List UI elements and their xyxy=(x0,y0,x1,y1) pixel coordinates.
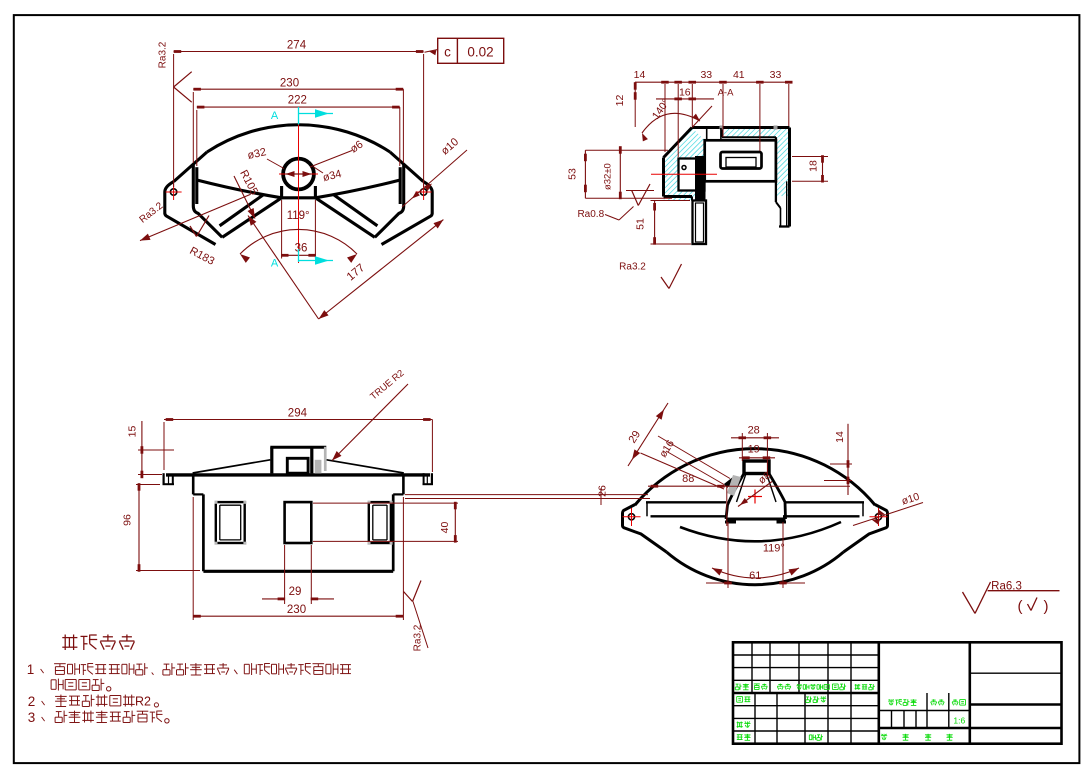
svg-text:26: 26 xyxy=(597,485,609,497)
svg-text:Ra0.8: Ra0.8 xyxy=(577,209,604,220)
svg-text:Ra6.3: Ra6.3 xyxy=(991,580,1022,592)
svg-text:88: 88 xyxy=(682,473,694,485)
svg-text:28: 28 xyxy=(748,425,760,437)
svg-text:14: 14 xyxy=(834,431,846,443)
svg-text:A: A xyxy=(271,258,279,270)
svg-text:51: 51 xyxy=(635,218,647,230)
svg-text:33: 33 xyxy=(700,69,712,81)
svg-text:36: 36 xyxy=(295,243,308,255)
svg-text:Ra3.2: Ra3.2 xyxy=(619,262,646,273)
svg-text:230: 230 xyxy=(280,78,299,90)
svg-text:15: 15 xyxy=(127,426,139,438)
svg-text:33: 33 xyxy=(770,69,782,81)
svg-text:(: ( xyxy=(1018,598,1023,615)
svg-text:12: 12 xyxy=(614,95,626,107)
svg-text:274: 274 xyxy=(287,40,307,52)
svg-text:29: 29 xyxy=(289,586,302,598)
svg-text:1:6: 1:6 xyxy=(953,716,965,726)
svg-text:A-A: A-A xyxy=(718,88,735,99)
svg-text:61: 61 xyxy=(749,570,761,582)
svg-text:0.02: 0.02 xyxy=(467,45,493,60)
svg-text:A: A xyxy=(271,110,279,122)
svg-text:230: 230 xyxy=(287,604,306,616)
svg-text:c: c xyxy=(444,45,451,60)
svg-text:19: 19 xyxy=(748,444,760,456)
svg-text:14: 14 xyxy=(634,69,646,81)
svg-text:Ra3.2: Ra3.2 xyxy=(158,41,169,68)
svg-text:ø32±0: ø32±0 xyxy=(602,163,613,190)
svg-text:41: 41 xyxy=(733,69,745,81)
svg-text:2: 2 xyxy=(28,694,36,709)
svg-text:96: 96 xyxy=(122,514,134,526)
svg-text:Ra3.2: Ra3.2 xyxy=(413,624,424,651)
svg-text:1: 1 xyxy=(27,662,35,677)
svg-text:18: 18 xyxy=(808,160,820,172)
svg-text:222: 222 xyxy=(288,95,307,107)
svg-text:119°: 119° xyxy=(763,543,785,555)
svg-text:40: 40 xyxy=(439,522,451,534)
svg-text:119°: 119° xyxy=(287,210,310,222)
svg-text:): ) xyxy=(1044,598,1049,615)
svg-text:16: 16 xyxy=(679,86,691,98)
svg-text:294: 294 xyxy=(288,407,308,419)
svg-text:3: 3 xyxy=(28,710,36,725)
svg-text:53: 53 xyxy=(567,168,579,180)
svg-text:R2: R2 xyxy=(135,695,151,709)
